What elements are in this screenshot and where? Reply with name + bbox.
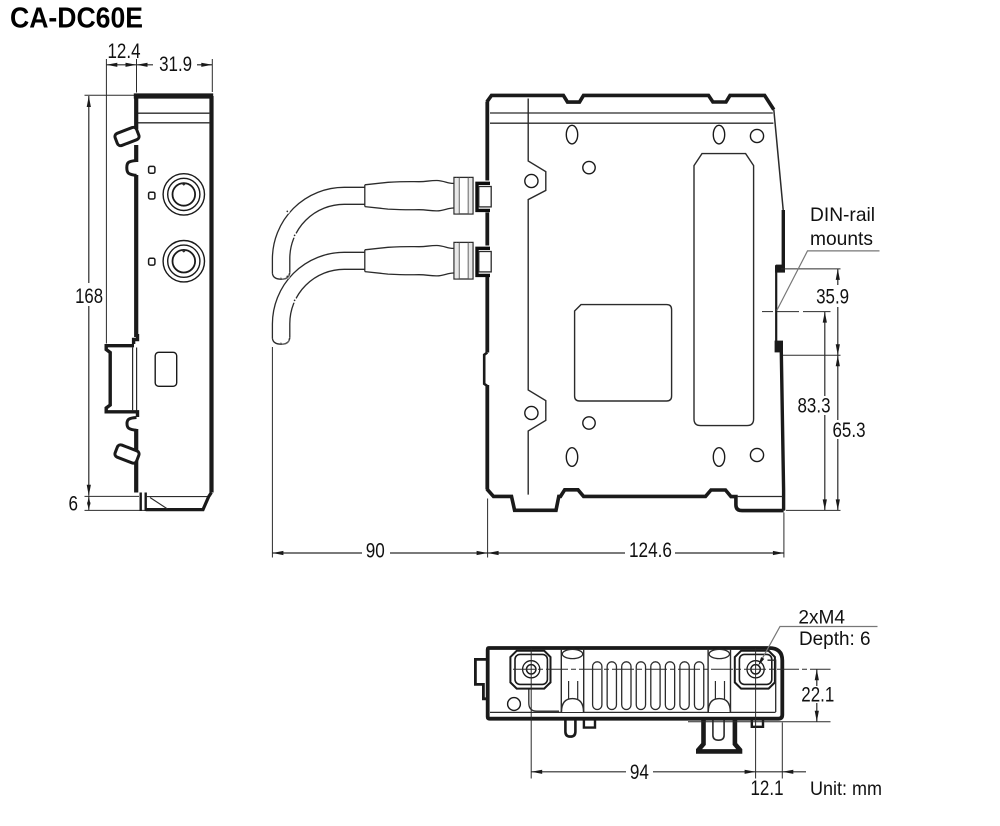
svg-text:168: 168 [75,285,103,308]
svg-text:12.1: 12.1 [751,777,784,800]
svg-text:12.4: 12.4 [108,40,141,63]
svg-text:mounts: mounts [810,229,873,250]
svg-text:DIN-rail: DIN-rail [810,205,875,226]
svg-text:65.3: 65.3 [833,419,866,442]
svg-text:83.3: 83.3 [798,394,831,417]
svg-text:35.9: 35.9 [816,285,849,308]
svg-text:Depth: 6: Depth: 6 [799,629,871,650]
svg-text:94: 94 [630,761,649,784]
svg-text:CA-DC60E: CA-DC60E [10,3,143,35]
svg-text:31.9: 31.9 [159,53,192,76]
svg-text:2xM4: 2xM4 [798,608,845,629]
svg-text:124.6: 124.6 [629,539,672,562]
svg-text:90: 90 [366,539,385,562]
svg-text:6: 6 [69,493,79,516]
svg-text:22.1: 22.1 [801,683,834,706]
svg-text:Unit: mm: Unit: mm [810,779,882,800]
